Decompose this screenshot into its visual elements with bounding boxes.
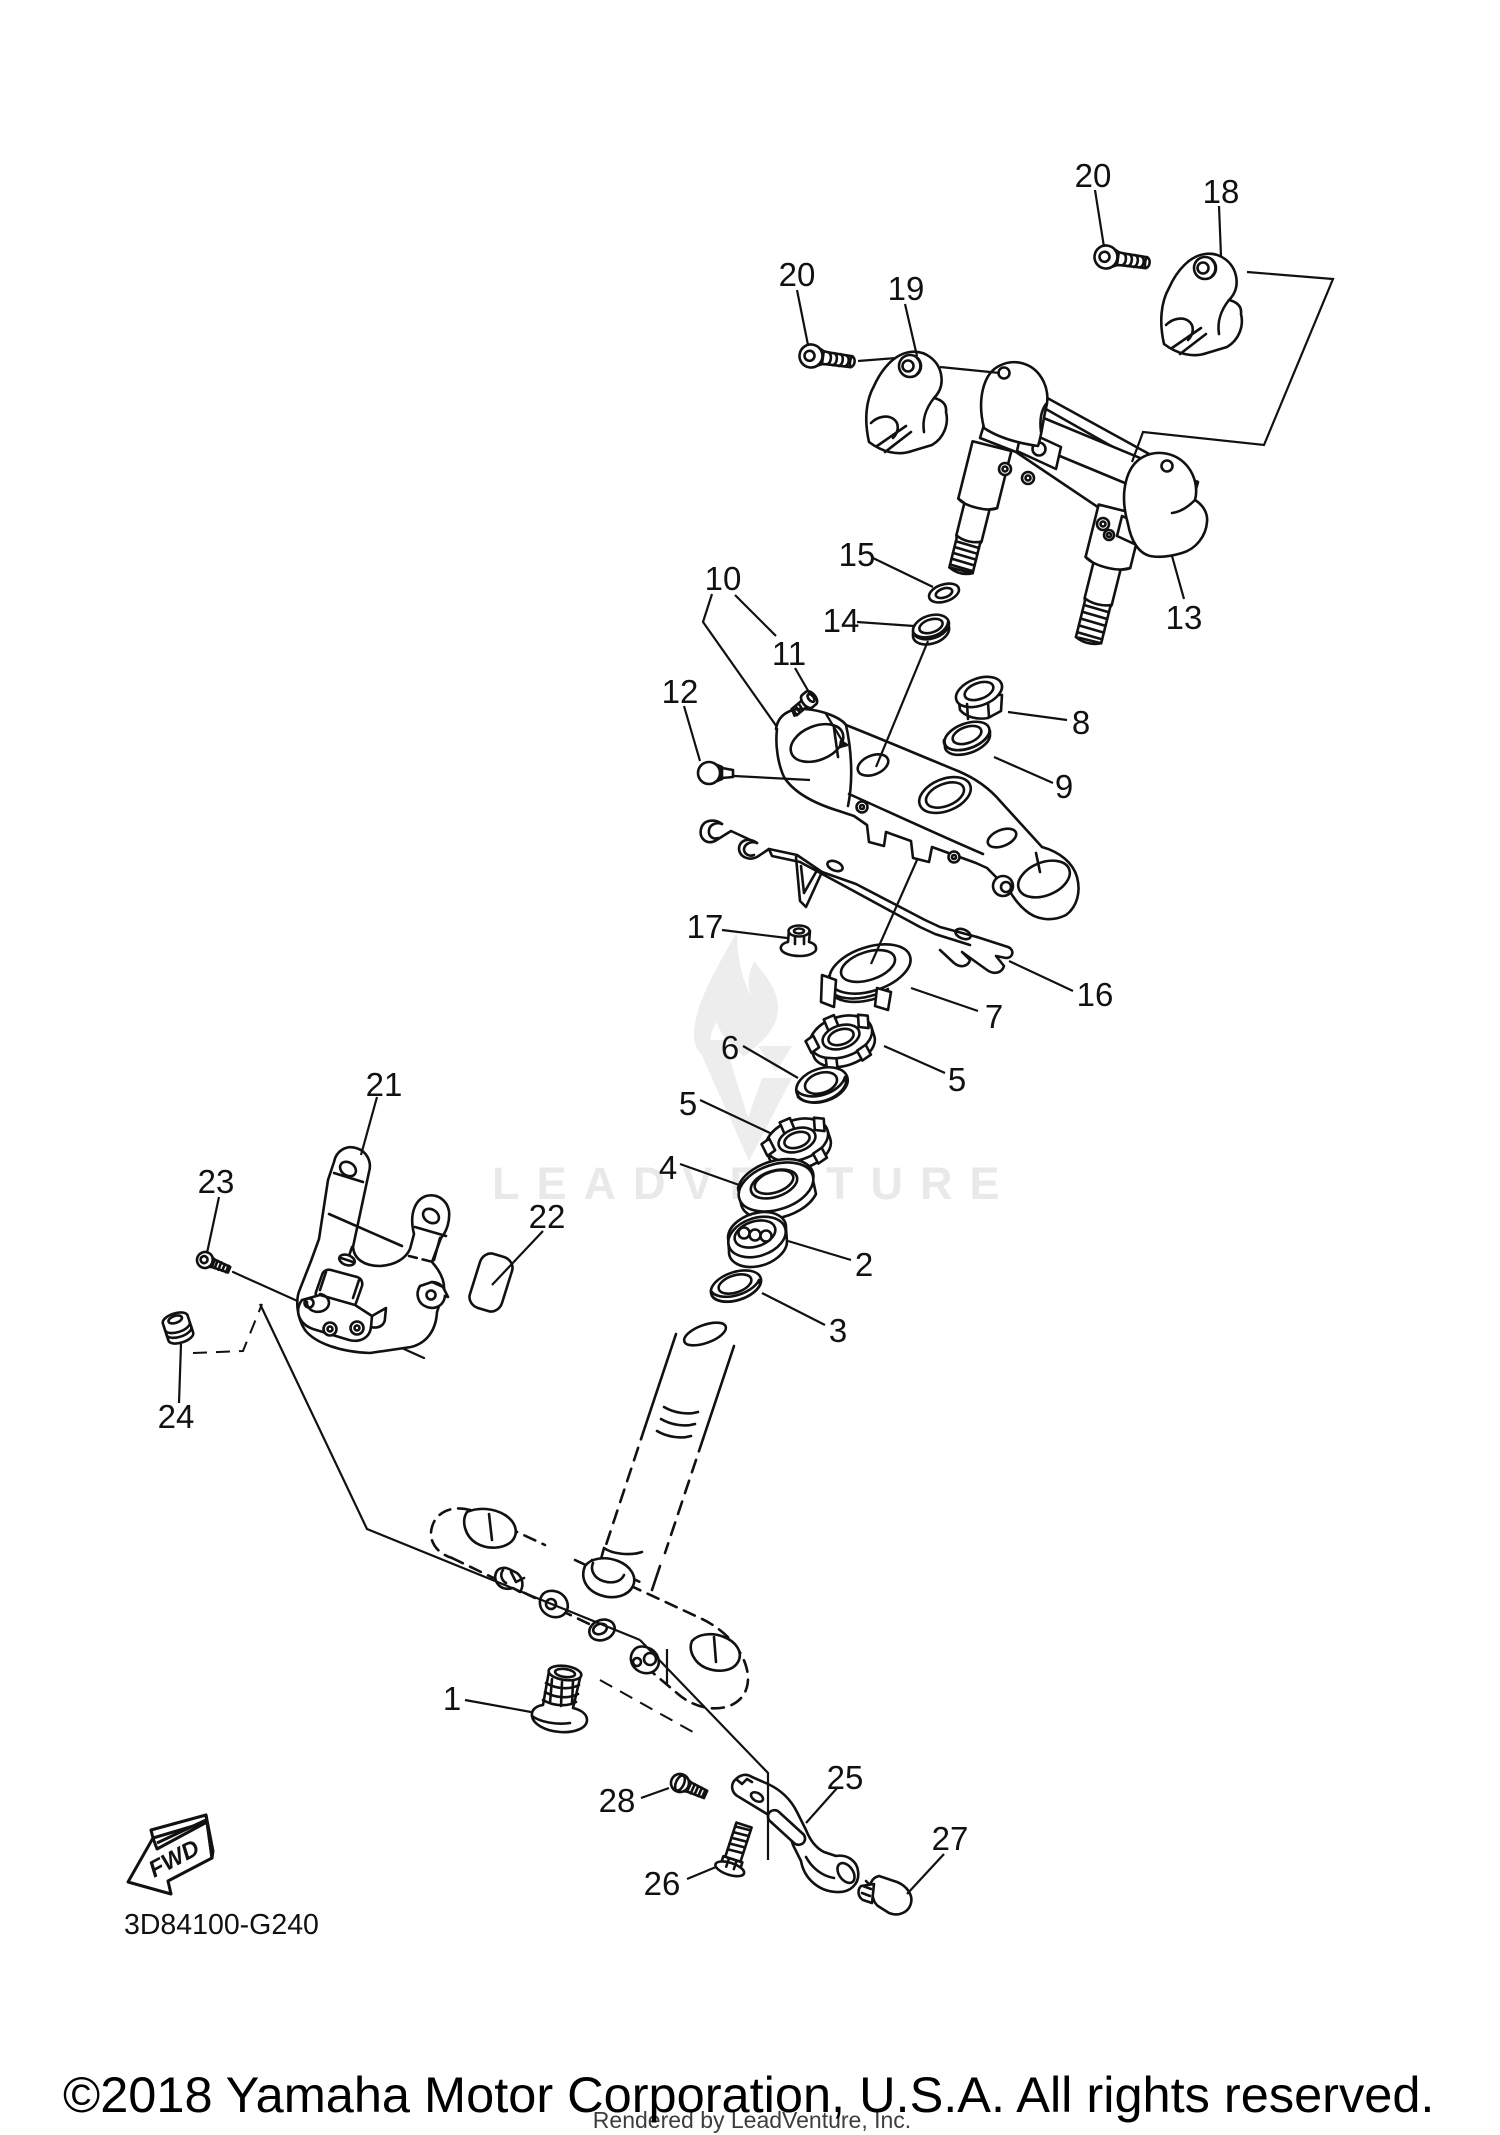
svg-text:17: 17 xyxy=(687,908,724,945)
svg-text:10: 10 xyxy=(705,560,742,597)
svg-text:16: 16 xyxy=(1077,976,1114,1013)
svg-text:19: 19 xyxy=(888,270,925,307)
svg-text:28: 28 xyxy=(599,1782,636,1819)
svg-text:20: 20 xyxy=(779,256,816,293)
svg-text:23: 23 xyxy=(198,1163,235,1200)
svg-text:6: 6 xyxy=(721,1029,739,1066)
svg-text:22: 22 xyxy=(529,1198,566,1235)
svg-text:4: 4 xyxy=(659,1149,677,1186)
svg-text:26: 26 xyxy=(644,1865,681,1902)
svg-text:13: 13 xyxy=(1166,599,1203,636)
svg-text:5: 5 xyxy=(948,1061,966,1098)
svg-text:18: 18 xyxy=(1203,173,1240,210)
svg-text:21: 21 xyxy=(366,1066,403,1103)
svg-text:2: 2 xyxy=(855,1246,873,1283)
svg-text:15: 15 xyxy=(839,536,876,573)
svg-text:27: 27 xyxy=(932,1820,969,1857)
svg-text:7: 7 xyxy=(985,998,1003,1035)
svg-text:11: 11 xyxy=(772,635,806,672)
svg-text:25: 25 xyxy=(827,1759,864,1796)
svg-text:14: 14 xyxy=(823,602,860,639)
svg-text:12: 12 xyxy=(662,673,699,710)
svg-text:5: 5 xyxy=(679,1085,697,1122)
svg-text:3: 3 xyxy=(829,1312,847,1349)
svg-text:24: 24 xyxy=(158,1398,195,1435)
svg-text:3D84100-G240: 3D84100-G240 xyxy=(124,1909,319,1941)
svg-text:9: 9 xyxy=(1055,768,1073,805)
svg-text:©2018 Yamaha Motor Corporation: ©2018 Yamaha Motor Corporation, U.S.A. A… xyxy=(63,2066,1434,2123)
svg-text:1: 1 xyxy=(443,1680,461,1717)
svg-text:8: 8 xyxy=(1072,704,1090,741)
svg-text:20: 20 xyxy=(1075,157,1112,194)
